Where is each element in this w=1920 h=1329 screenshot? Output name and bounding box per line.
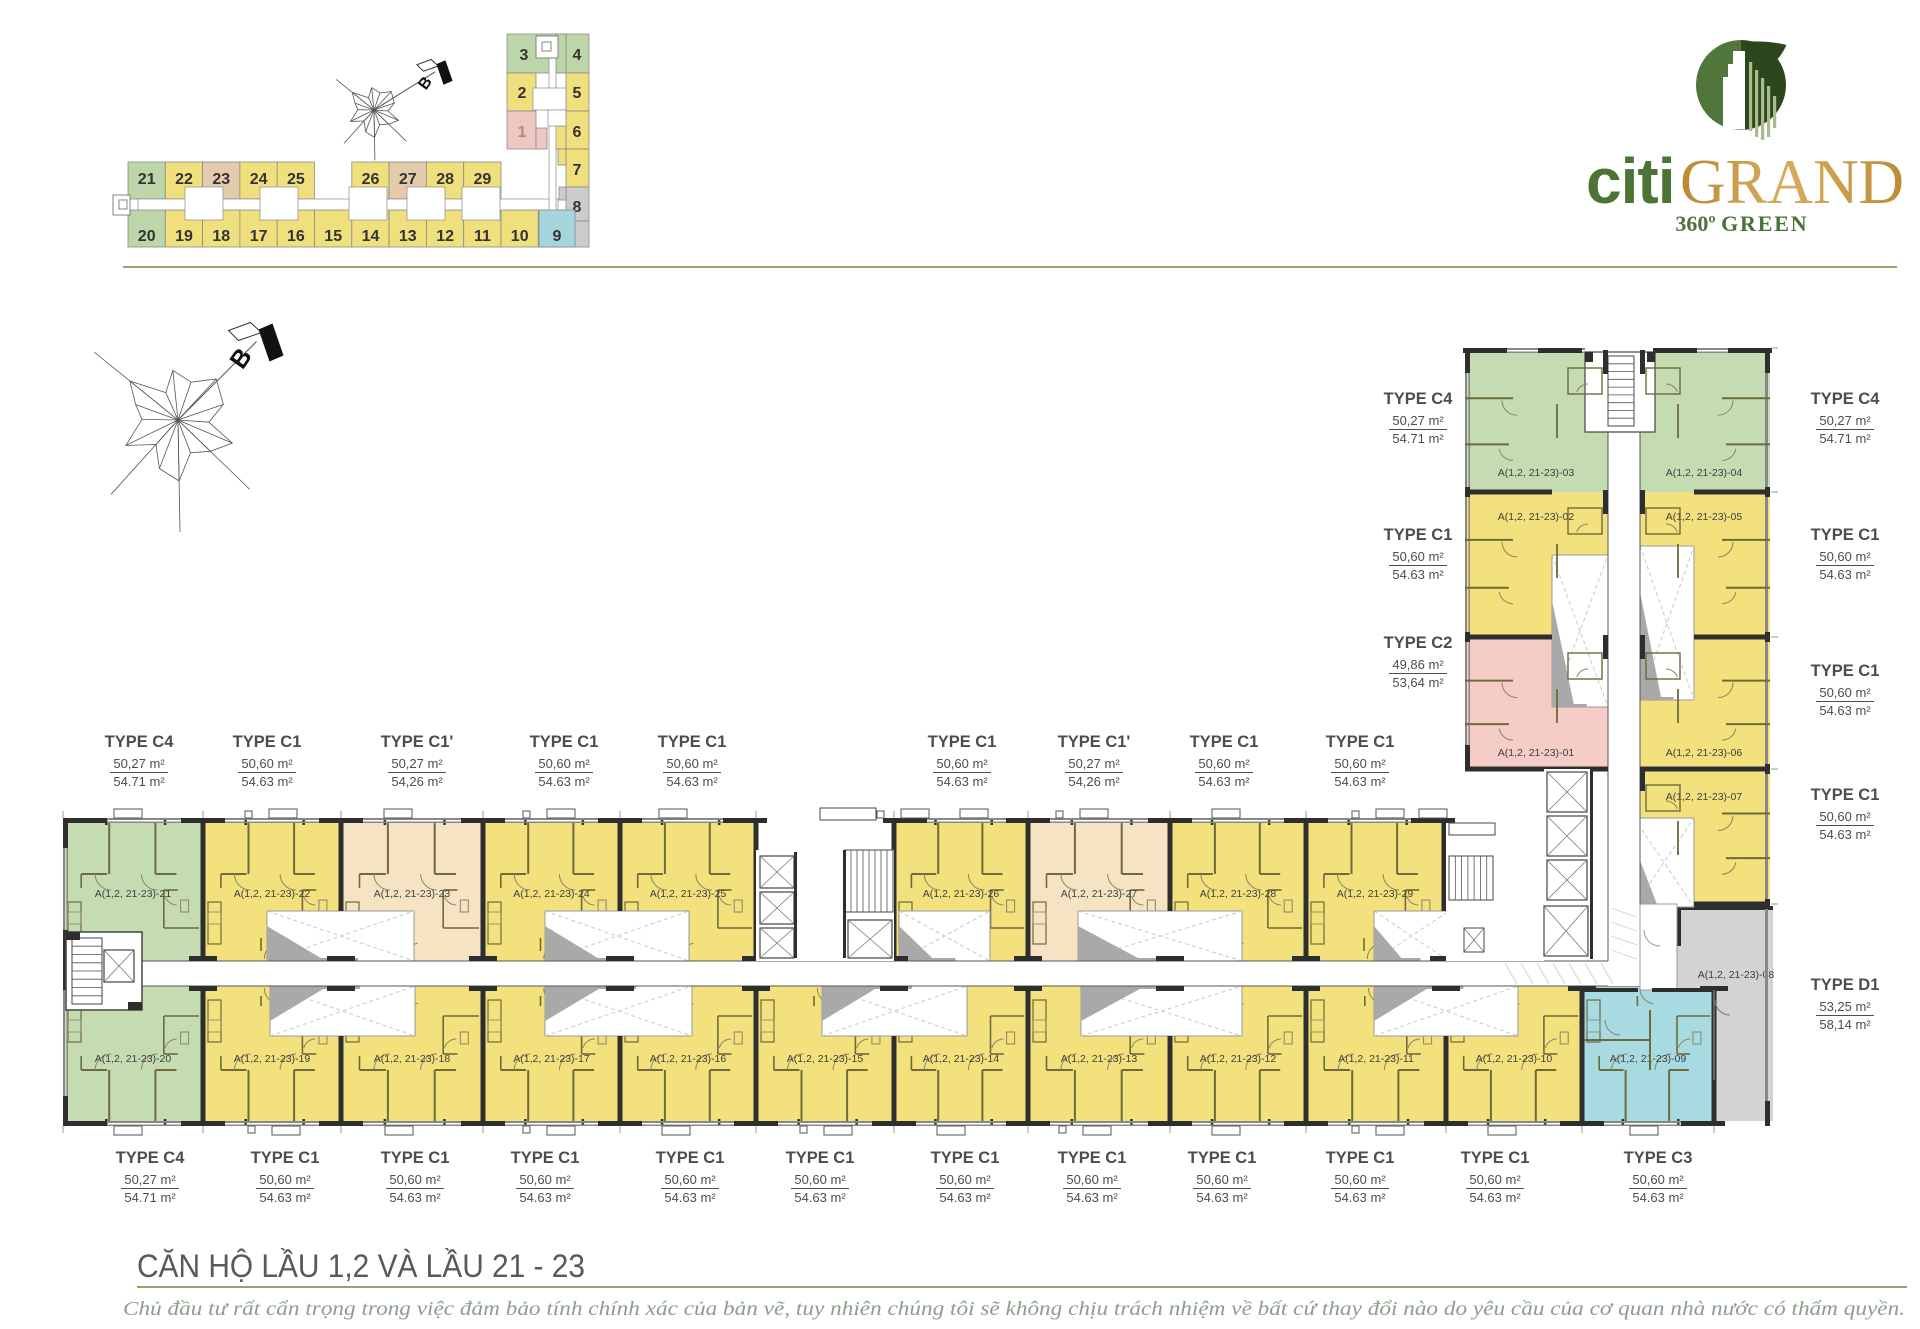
svg-text:360º G R E E N: 360º G R E E N — [1675, 211, 1806, 236]
svg-text:A(1,2, 21-23)-23: A(1,2, 21-23)-23 — [374, 888, 451, 900]
svg-text:TYPE C1': TYPE C1' — [1058, 733, 1131, 751]
svg-text:A(1,2, 21-23)-28: A(1,2, 21-23)-28 — [1200, 888, 1277, 900]
svg-text:50,60 m²: 50,60 m² — [939, 1172, 991, 1187]
svg-text:TYPE C1: TYPE C1 — [1811, 526, 1880, 544]
svg-text:50,60 m²: 50,60 m² — [1334, 1172, 1386, 1187]
svg-text:TYPE C1: TYPE C1 — [658, 733, 727, 751]
svg-text:A(1,2, 21-23)-08: A(1,2, 21-23)-08 — [1698, 969, 1775, 981]
svg-text:A(1,2, 21-23)-15: A(1,2, 21-23)-15 — [787, 1053, 864, 1065]
svg-text:29: 29 — [474, 171, 492, 188]
svg-text:A(1,2, 21-23)-24: A(1,2, 21-23)-24 — [513, 888, 590, 900]
svg-text:TYPE C1: TYPE C1 — [381, 1149, 450, 1167]
svg-text:54.63 m²: 54.63 m² — [1198, 774, 1250, 789]
svg-text:50,60 m²: 50,60 m² — [666, 756, 718, 771]
svg-text:54.63 m²: 54.63 m² — [794, 1190, 846, 1205]
svg-text:TYPE C1: TYPE C1 — [1058, 1149, 1127, 1167]
svg-text:A(1,2, 21-23)-10: A(1,2, 21-23)-10 — [1476, 1053, 1553, 1065]
svg-text:CĂN HỘ LẦU 1,2 VÀ LẦU 21 - 23: CĂN HỘ LẦU 1,2 VÀ LẦU 21 - 23 — [137, 1248, 585, 1284]
svg-text:A(1,2, 21-23)-13: A(1,2, 21-23)-13 — [1061, 1053, 1138, 1065]
svg-text:TYPE C1: TYPE C1 — [931, 1149, 1000, 1167]
svg-text:A(1,2, 21-23)-27: A(1,2, 21-23)-27 — [1061, 888, 1138, 900]
svg-text:21: 21 — [138, 171, 156, 188]
svg-text:53,25 m²: 53,25 m² — [1819, 999, 1871, 1014]
svg-text:TYPE C1: TYPE C1 — [511, 1149, 580, 1167]
svg-text:54.63 m²: 54.63 m² — [1392, 567, 1444, 582]
svg-text:50,60 m²: 50,60 m² — [1392, 549, 1444, 564]
svg-text:54.63 m²: 54.63 m² — [519, 1190, 571, 1205]
svg-text:A(1,2, 21-23)-20: A(1,2, 21-23)-20 — [95, 1053, 172, 1065]
svg-text:A(1,2, 21-23)-06: A(1,2, 21-23)-06 — [1666, 747, 1743, 759]
svg-text:54.71 m²: 54.71 m² — [124, 1190, 176, 1205]
svg-text:50,60 m²: 50,60 m² — [936, 756, 988, 771]
svg-text:5: 5 — [573, 85, 582, 102]
svg-text:A(1,2, 21-23)-11: A(1,2, 21-23)-11 — [1338, 1053, 1414, 1065]
svg-text:4: 4 — [573, 47, 582, 64]
svg-text:50,60 m²: 50,60 m² — [1334, 756, 1386, 771]
svg-text:54.63 m²: 54.63 m² — [538, 774, 590, 789]
svg-text:49,86 m²: 49,86 m² — [1392, 657, 1444, 672]
svg-text:54.63 m²: 54.63 m² — [664, 1190, 716, 1205]
svg-text:50,27 m²: 50,27 m² — [391, 756, 443, 771]
svg-text:A(1,2, 21-23)-05: A(1,2, 21-23)-05 — [1666, 511, 1743, 523]
svg-text:50,60 m²: 50,60 m² — [1632, 1172, 1684, 1187]
svg-text:54.63 m²: 54.63 m² — [1066, 1190, 1118, 1205]
svg-text:TYPE C2: TYPE C2 — [1384, 634, 1453, 652]
svg-text:54.71 m²: 54.71 m² — [1819, 431, 1871, 446]
svg-text:TYPE C1': TYPE C1' — [381, 733, 454, 751]
svg-text:54.63 m²: 54.63 m² — [1819, 703, 1871, 718]
svg-text:A(1,2, 21-23)-17: A(1,2, 21-23)-17 — [513, 1053, 590, 1065]
svg-text:A(1,2, 21-23)-29: A(1,2, 21-23)-29 — [1337, 888, 1414, 900]
svg-text:50,60 m²: 50,60 m² — [519, 1172, 571, 1187]
svg-text:citi: citi — [1586, 145, 1674, 217]
svg-text:50,60 m²: 50,60 m² — [259, 1172, 311, 1187]
svg-text:54.63 m²: 54.63 m² — [1334, 774, 1386, 789]
svg-text:50,27 m²: 50,27 m² — [1392, 413, 1444, 428]
svg-text:50,27 m²: 50,27 m² — [1068, 756, 1120, 771]
svg-text:19: 19 — [175, 228, 193, 245]
svg-text:26: 26 — [362, 171, 380, 188]
svg-text:A(1,2, 21-23)-26: A(1,2, 21-23)-26 — [923, 888, 1000, 900]
svg-text:A(1,2, 21-23)-07: A(1,2, 21-23)-07 — [1666, 791, 1743, 803]
svg-text:54.63 m²: 54.63 m² — [389, 1190, 441, 1205]
svg-text:53,64 m²: 53,64 m² — [1392, 675, 1444, 690]
svg-text:54.63 m²: 54.63 m² — [1819, 827, 1871, 842]
svg-text:TYPE C1: TYPE C1 — [1384, 526, 1453, 544]
svg-text:54.63 m²: 54.63 m² — [1819, 567, 1871, 582]
svg-text:TYPE C1: TYPE C1 — [1326, 733, 1395, 751]
svg-text:TYPE C1: TYPE C1 — [530, 733, 599, 751]
svg-text:14: 14 — [362, 228, 380, 245]
svg-text:A(1,2, 21-23)-09: A(1,2, 21-23)-09 — [1610, 1053, 1687, 1065]
svg-text:A(1,2, 21-23)-03: A(1,2, 21-23)-03 — [1498, 467, 1575, 479]
svg-text:TYPE C4: TYPE C4 — [1811, 390, 1881, 408]
svg-text:20: 20 — [138, 228, 156, 245]
svg-text:54.63 m²: 54.63 m² — [1469, 1190, 1521, 1205]
svg-text:54.63 m²: 54.63 m² — [939, 1190, 991, 1205]
svg-text:TYPE C1: TYPE C1 — [1326, 1149, 1395, 1167]
svg-text:TYPE C4: TYPE C4 — [116, 1149, 186, 1167]
svg-text:58,14 m²: 58,14 m² — [1819, 1017, 1871, 1032]
svg-text:TYPE C4: TYPE C4 — [105, 733, 175, 751]
svg-text:54.63 m²: 54.63 m² — [1196, 1190, 1248, 1205]
svg-text:TYPE C3: TYPE C3 — [1624, 1149, 1693, 1167]
svg-text:TYPE C1: TYPE C1 — [1811, 786, 1880, 804]
svg-text:54.63 m²: 54.63 m² — [259, 1190, 311, 1205]
svg-text:54.71 m²: 54.71 m² — [1392, 431, 1444, 446]
svg-text:50,27 m²: 50,27 m² — [1819, 413, 1871, 428]
svg-text:18: 18 — [212, 228, 230, 245]
svg-text:TYPE C1: TYPE C1 — [1461, 1149, 1530, 1167]
svg-text:13: 13 — [399, 228, 417, 245]
svg-text:54.63 m²: 54.63 m² — [666, 774, 718, 789]
svg-text:GRAND: GRAND — [1680, 147, 1904, 217]
svg-text:50,60 m²: 50,60 m² — [794, 1172, 846, 1187]
svg-text:7: 7 — [573, 162, 582, 179]
svg-text:10: 10 — [511, 228, 529, 245]
svg-text:28: 28 — [436, 171, 454, 188]
svg-text:50,60 m²: 50,60 m² — [1819, 809, 1871, 824]
svg-text:50,60 m²: 50,60 m² — [1819, 549, 1871, 564]
svg-text:54.63 m²: 54.63 m² — [241, 774, 293, 789]
svg-text:50,60 m²: 50,60 m² — [389, 1172, 441, 1187]
svg-text:16: 16 — [287, 228, 305, 245]
svg-text:50,60 m²: 50,60 m² — [538, 756, 590, 771]
svg-text:27: 27 — [399, 171, 417, 188]
svg-text:12: 12 — [436, 228, 454, 245]
svg-text:TYPE C1: TYPE C1 — [1188, 1149, 1257, 1167]
svg-text:A(1,2, 21-23)-14: A(1,2, 21-23)-14 — [923, 1053, 1000, 1065]
svg-text:6: 6 — [573, 124, 582, 141]
svg-text:A(1,2, 21-23)-04: A(1,2, 21-23)-04 — [1666, 467, 1743, 479]
svg-text:A(1,2, 21-23)-18: A(1,2, 21-23)-18 — [374, 1053, 451, 1065]
svg-text:54,26 m²: 54,26 m² — [391, 774, 443, 789]
svg-text:50,60 m²: 50,60 m² — [1819, 685, 1871, 700]
svg-text:50,27 m²: 50,27 m² — [113, 756, 165, 771]
svg-text:3: 3 — [520, 47, 529, 64]
svg-text:TYPE C1: TYPE C1 — [251, 1149, 320, 1167]
svg-text:A(1,2, 21-23)-21: A(1,2, 21-23)-21 — [95, 888, 172, 900]
svg-text:23: 23 — [212, 171, 230, 188]
svg-text:17: 17 — [250, 228, 268, 245]
svg-text:A(1,2, 21-23)-25: A(1,2, 21-23)-25 — [650, 888, 727, 900]
svg-text:54.63 m²: 54.63 m² — [1632, 1190, 1684, 1205]
svg-text:A(1,2, 21-23)-19: A(1,2, 21-23)-19 — [234, 1053, 311, 1065]
svg-text:1: 1 — [518, 124, 527, 141]
svg-text:TYPE C1: TYPE C1 — [786, 1149, 855, 1167]
svg-text:TYPE C1: TYPE C1 — [1190, 733, 1259, 751]
svg-text:TYPE C1: TYPE C1 — [928, 733, 997, 751]
svg-text:50,60 m²: 50,60 m² — [1066, 1172, 1118, 1187]
svg-text:A(1,2, 21-23)-01: A(1,2, 21-23)-01 — [1498, 747, 1575, 759]
svg-text:22: 22 — [175, 171, 193, 188]
svg-text:24: 24 — [250, 171, 268, 188]
svg-text:TYPE C1: TYPE C1 — [233, 733, 302, 751]
svg-text:A(1,2, 21-23)-12: A(1,2, 21-23)-12 — [1200, 1053, 1277, 1065]
svg-text:50,60 m²: 50,60 m² — [241, 756, 293, 771]
svg-text:50,60 m²: 50,60 m² — [1198, 756, 1250, 771]
svg-text:TYPE C4: TYPE C4 — [1384, 390, 1454, 408]
svg-text:50,60 m²: 50,60 m² — [664, 1172, 716, 1187]
svg-text:54,26 m²: 54,26 m² — [1068, 774, 1120, 789]
svg-text:A(1,2, 21-23)-16: A(1,2, 21-23)-16 — [650, 1053, 727, 1065]
svg-text:TYPE C1: TYPE C1 — [656, 1149, 725, 1167]
svg-text:54.71 m²: 54.71 m² — [113, 774, 165, 789]
svg-text:2: 2 — [518, 85, 527, 102]
svg-text:TYPE C1: TYPE C1 — [1811, 662, 1880, 680]
svg-text:54.63 m²: 54.63 m² — [936, 774, 988, 789]
svg-text:50,60 m²: 50,60 m² — [1196, 1172, 1248, 1187]
svg-text:A(1,2, 21-23)-02: A(1,2, 21-23)-02 — [1498, 511, 1575, 523]
svg-text:15: 15 — [324, 228, 342, 245]
svg-text:50,60 m²: 50,60 m² — [1469, 1172, 1521, 1187]
svg-text:54.63 m²: 54.63 m² — [1334, 1190, 1386, 1205]
svg-text:A(1,2, 21-23)-22: A(1,2, 21-23)-22 — [234, 888, 311, 900]
svg-text:Chủ đầu tư rất cẩn trọng trong: Chủ đầu tư rất cẩn trọng trong việc đảm … — [123, 1299, 1905, 1320]
svg-text:25: 25 — [287, 171, 305, 188]
svg-text:50,27 m²: 50,27 m² — [124, 1172, 176, 1187]
svg-text:TYPE D1: TYPE D1 — [1811, 976, 1880, 994]
svg-text:9: 9 — [553, 228, 562, 245]
svg-text:11: 11 — [474, 228, 491, 245]
